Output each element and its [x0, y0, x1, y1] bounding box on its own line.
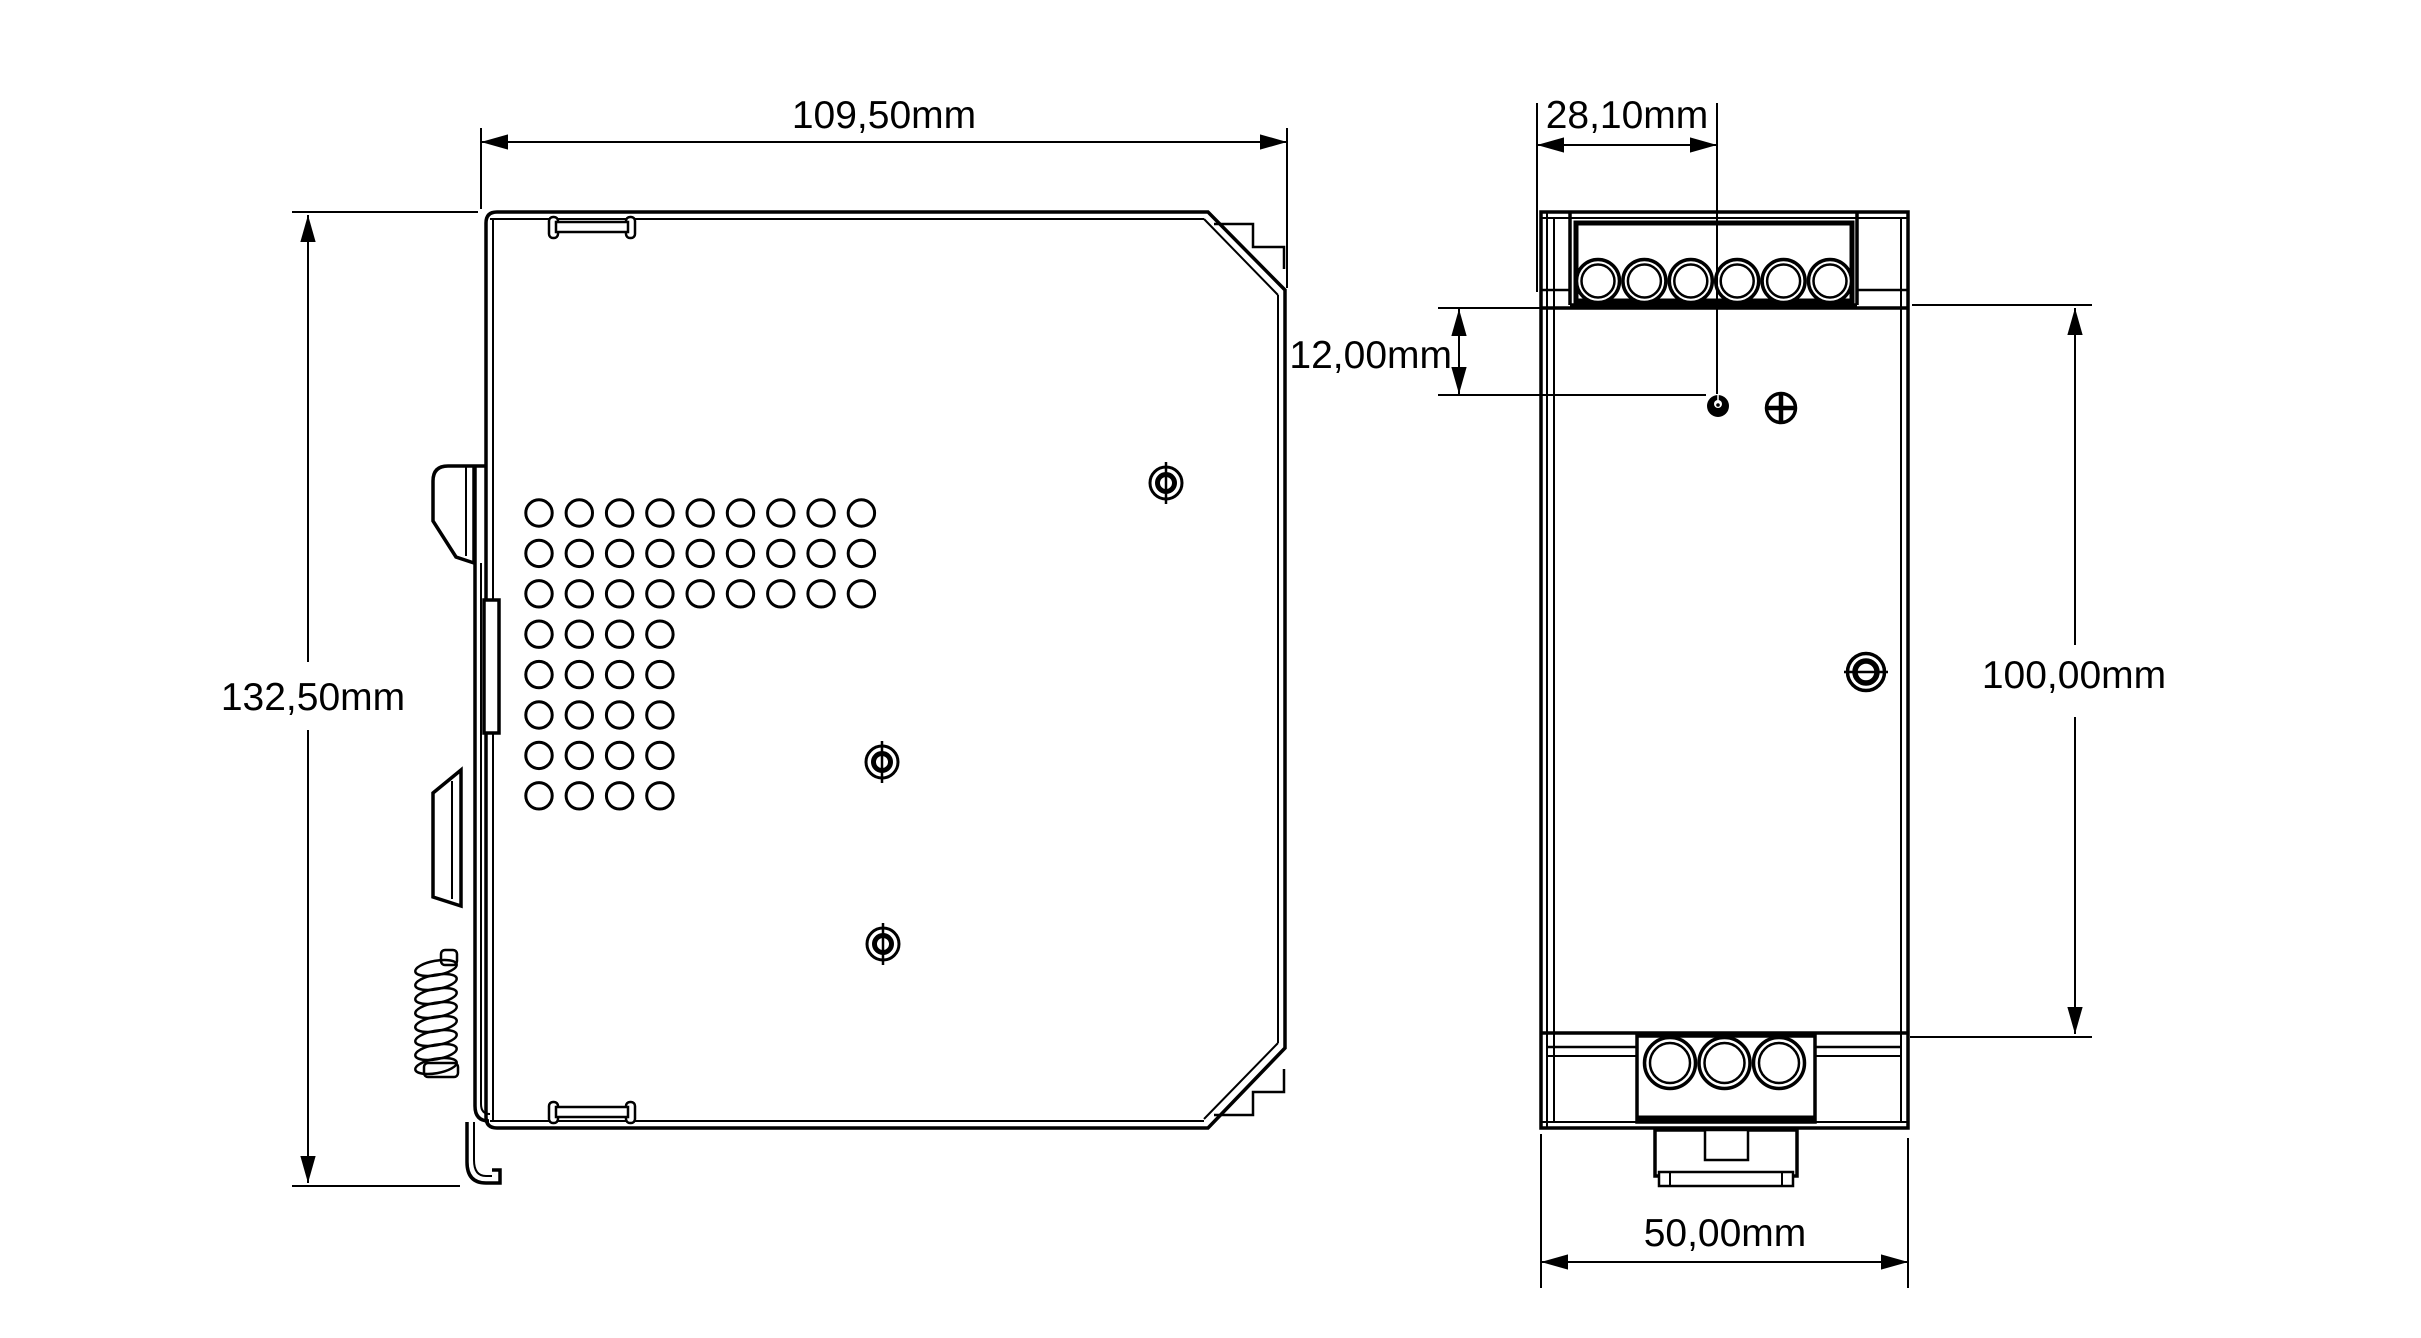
terminal-hole — [1699, 1038, 1750, 1089]
dim-label-adjuster-offset: 28,10mm — [1546, 94, 1709, 137]
terminal-hole — [1645, 1038, 1696, 1089]
dimension-mounting-height: 100,00mm — [1910, 305, 2166, 1037]
clip-wedge — [433, 770, 461, 906]
front-case-screw — [1844, 654, 1888, 691]
clip-foot-inner — [474, 1122, 492, 1176]
dim-label-adjuster-drop: 12,00mm — [1289, 334, 1452, 377]
terminal-hole — [1716, 260, 1759, 303]
dim-label-side-width: 109,50mm — [792, 94, 976, 137]
terminal-hole — [1762, 260, 1805, 303]
dim-label-mounting-height: 100,00mm — [1982, 654, 2166, 697]
terminal-hole — [1623, 260, 1666, 303]
terminal-hole — [1577, 260, 1620, 303]
terminal-hole — [1754, 1038, 1805, 1089]
bottom-terminal-block — [1637, 1036, 1815, 1122]
clip-spring — [414, 950, 458, 1077]
clip-foot — [467, 1122, 500, 1183]
drawing-canvas: 109,50mm 132,50mm 28,10mm 12,00mm — [0, 0, 2421, 1338]
front-view — [1541, 212, 1908, 1186]
led-indicator — [1707, 395, 1729, 417]
dimension-side-height: 132,50mm — [221, 212, 478, 1186]
side-view — [414, 212, 1285, 1183]
phillips-screw — [1766, 393, 1796, 423]
clip-slider — [484, 600, 499, 733]
dim-label-front-width: 50,00mm — [1644, 1212, 1807, 1255]
technical-drawing-page: 109,50mm 132,50mm 28,10mm 12,00mm — [0, 0, 2421, 1338]
front-din-foot — [1655, 1130, 1797, 1186]
dim-label-side-height: 132,50mm — [221, 676, 405, 719]
terminal-hole — [1809, 260, 1852, 303]
clip-hook — [433, 466, 486, 563]
terminal-hole — [1669, 260, 1712, 303]
